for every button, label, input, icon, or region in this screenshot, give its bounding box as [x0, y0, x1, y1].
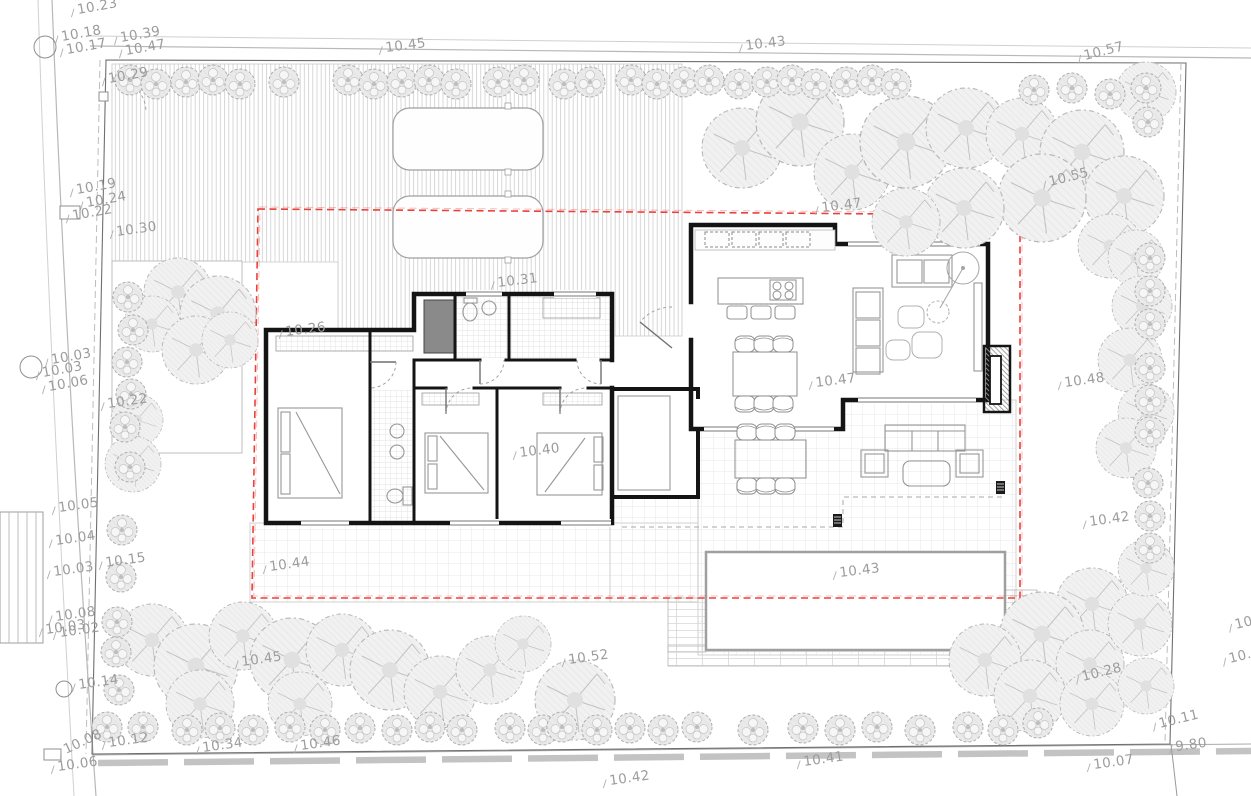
- tree-symbol: [1108, 592, 1172, 656]
- ensuite-bath-floor: [372, 390, 412, 521]
- car-2-mirror-icon: [505, 257, 511, 263]
- survey-tick-icon: [1086, 763, 1091, 771]
- elevation-label-text: 10.06: [56, 753, 98, 775]
- drain-grate-icon: [833, 514, 842, 527]
- survey-tick-icon: [1228, 624, 1234, 633]
- elevation-label-text: 10.08: [61, 726, 105, 758]
- shrub-symbol: [333, 65, 363, 95]
- survey-tick-icon: [1057, 381, 1062, 389]
- shrub-symbol: [441, 69, 471, 99]
- elevation-label: 10.57: [1075, 39, 1125, 66]
- elevation-label: 10: [1226, 613, 1251, 635]
- survey-tick-icon: [46, 570, 51, 578]
- manhole-icon: [20, 356, 42, 378]
- shrub-symbol: [115, 452, 145, 482]
- shrub-symbol: [382, 715, 412, 745]
- elevation-label: 10.48: [1056, 369, 1105, 391]
- survey-tick-icon: [69, 189, 74, 198]
- wardrobe-bedroom-2: [422, 393, 479, 405]
- utility-box-icon: [99, 92, 108, 101]
- shrub-symbol: [616, 65, 646, 95]
- survey-tick-icon: [1082, 520, 1087, 528]
- elevation-label-text: 10.45: [385, 35, 427, 56]
- left-road-edge-outer: [38, 0, 74, 796]
- survey-tick-icon: [48, 539, 53, 547]
- survey-tick-icon: [113, 37, 118, 46]
- shrub-symbol: [1133, 107, 1163, 137]
- shrub-symbol: [682, 712, 712, 742]
- survey-markers-layer: [20, 36, 108, 760]
- shrub-symbol: [345, 713, 375, 743]
- shrub-symbol: [694, 65, 724, 95]
- elevation-label-text: 10.42: [1088, 508, 1130, 530]
- shrub-symbol: [1023, 708, 1053, 738]
- elevation-label-text: 9.80: [1174, 735, 1208, 755]
- elevation-label-text: 10.23: [76, 0, 119, 18]
- elevation-label: 10.03: [45, 558, 94, 580]
- shower-closet: [424, 300, 455, 353]
- elevation-label: 10.42: [601, 767, 650, 789]
- shrub-symbol: [575, 67, 605, 97]
- shrub-symbol: [862, 712, 892, 742]
- shrub-symbol: [509, 65, 539, 95]
- crosswalk-steps: [0, 512, 43, 643]
- survey-tick-icon: [738, 44, 743, 52]
- shrub-symbol: [1135, 417, 1165, 447]
- shrub-symbol: [953, 712, 983, 742]
- shrub-symbol: [1135, 385, 1165, 415]
- elevation-label: 10.47: [814, 195, 863, 217]
- tree-symbol: [872, 188, 940, 256]
- shrub-symbol: [881, 69, 911, 99]
- car-2: [393, 196, 543, 258]
- shrub-symbol: [387, 67, 417, 97]
- car-2-mirror-icon: [505, 191, 511, 197]
- survey-tick-icon: [378, 46, 383, 54]
- shrub-symbol: [648, 715, 678, 745]
- car-1-mirror-icon: [505, 103, 511, 109]
- pool-deck-left: [668, 598, 706, 652]
- survey-tick-icon: [41, 386, 46, 395]
- elevation-label-text: 10.41: [802, 748, 844, 770]
- elevation-label-text: 10.05: [57, 494, 99, 516]
- shrub-symbol: [905, 715, 935, 745]
- elevation-label: 10.42: [1081, 508, 1130, 530]
- elevation-label-text: 10.0: [1227, 644, 1251, 667]
- tree-symbol: [202, 312, 258, 368]
- shrub-symbol: [414, 65, 444, 95]
- shrub-symbol: [1131, 73, 1161, 103]
- tech-room: [612, 389, 698, 497]
- site-plan-drawing: 10.2310.1810.1710.3910.4710.2910.4510.43…: [0, 0, 1251, 796]
- survey-tick-icon: [50, 765, 55, 773]
- shrub-symbol: [788, 713, 818, 743]
- elevation-label-text: 10: [1233, 613, 1251, 633]
- shrub-symbol: [801, 69, 831, 99]
- elevation-label: 10.05: [50, 494, 99, 516]
- shrub-symbol: [1135, 353, 1165, 383]
- survey-tick-icon: [1152, 723, 1158, 732]
- drain-grate-icon: [996, 481, 1005, 494]
- tree-symbol: [1118, 658, 1174, 714]
- shrub-symbol: [110, 412, 140, 442]
- site-plan-page: 10.2310.1810.1710.3910.4710.2910.4510.43…: [0, 0, 1251, 796]
- shrub-symbol: [447, 715, 477, 745]
- survey-tick-icon: [796, 760, 801, 768]
- tree-symbol: [495, 616, 551, 672]
- shrub-symbol: [118, 315, 148, 345]
- survey-tick-icon: [70, 9, 75, 18]
- tech-room-opening: [694, 399, 700, 427]
- elevation-label-text: 10.52: [567, 646, 609, 668]
- survey-tick-icon: [118, 50, 123, 59]
- elevation-label: 10.04: [47, 527, 96, 549]
- car-1: [393, 108, 543, 170]
- shrub-symbol: [738, 715, 768, 745]
- shrub-symbol: [415, 712, 445, 742]
- laundry-cabinet: [543, 298, 600, 318]
- wardrobe-bedroom-3: [543, 393, 602, 405]
- elevation-label: 10.15: [97, 549, 146, 571]
- elevation-label-text: 10.42: [608, 767, 650, 789]
- shrub-symbol: [724, 69, 754, 99]
- shrub-symbol: [101, 637, 131, 667]
- shrub-symbol: [238, 715, 268, 745]
- elevation-label-text: 10.57: [1082, 39, 1125, 64]
- shrub-symbol: [495, 713, 525, 743]
- elevation-label-text: 10.15: [104, 549, 146, 571]
- car-1-mirror-icon: [505, 169, 511, 175]
- shrub-symbol: [102, 607, 132, 637]
- survey-tick-icon: [602, 779, 607, 787]
- elevation-label: 10.45: [378, 35, 427, 57]
- shrub-symbol: [582, 715, 612, 745]
- shrub-symbol: [547, 712, 577, 742]
- elevation-label-text: 10.43: [745, 33, 787, 54]
- survey-tick-icon: [59, 49, 64, 58]
- shrub-symbol: [1135, 276, 1165, 306]
- elevation-label: 10.43: [738, 33, 787, 55]
- survey-tick-icon: [1222, 658, 1228, 667]
- shrub-symbol: [171, 67, 201, 97]
- left-fence-line: [86, 60, 100, 754]
- shrub-symbol: [113, 282, 143, 312]
- shrub-symbol: [483, 67, 513, 97]
- top-road-edge-outer: [90, 36, 1251, 48]
- survey-tick-icon: [101, 741, 106, 749]
- shrub-symbol: [825, 715, 855, 745]
- manhole-icon: [34, 36, 56, 58]
- shrub-symbol: [988, 715, 1018, 745]
- shrub-symbol: [225, 69, 255, 99]
- shrub-symbol: [112, 347, 142, 377]
- shrub-symbol: [1135, 533, 1165, 563]
- elevation-label-text: 10.03: [52, 558, 94, 580]
- elevation-label-text: 10.22: [71, 201, 114, 224]
- shrub-symbol: [615, 713, 645, 743]
- shrub-symbol: [269, 67, 299, 97]
- survey-tick-icon: [35, 372, 40, 381]
- shrub-symbol: [107, 515, 137, 545]
- shrub-symbol: [1135, 501, 1165, 531]
- terrace-grid-west: [610, 497, 698, 602]
- shrub-symbol: [1133, 468, 1163, 498]
- elevation-label: 10.41: [795, 748, 844, 770]
- shrub-symbol: [172, 715, 202, 745]
- elevation-label-text: 10.48: [1063, 369, 1105, 391]
- shrub-symbol: [1135, 309, 1165, 339]
- top-road-edge: [90, 46, 1251, 58]
- shrub-symbol: [1019, 75, 1049, 105]
- elevation-label: 10.22: [64, 201, 114, 225]
- shrub-symbol: [831, 67, 861, 97]
- shrub-symbol: [642, 69, 672, 99]
- shrub-symbol: [198, 65, 228, 95]
- shrub-symbol: [549, 69, 579, 99]
- shrub-symbol: [1135, 243, 1165, 273]
- elevation-label: 10.0: [1220, 644, 1251, 669]
- elevation-label-text: 10.11: [1157, 707, 1200, 732]
- shrub-symbol: [359, 69, 389, 99]
- survey-tick-icon: [100, 402, 105, 410]
- elevation-label: 10.23: [69, 0, 119, 19]
- survey-tick-icon: [98, 561, 103, 569]
- survey-tick-icon: [51, 506, 56, 514]
- manhole-icon: [56, 681, 72, 697]
- shrub-symbol: [1057, 73, 1087, 103]
- shrub-symbol: [1095, 79, 1125, 109]
